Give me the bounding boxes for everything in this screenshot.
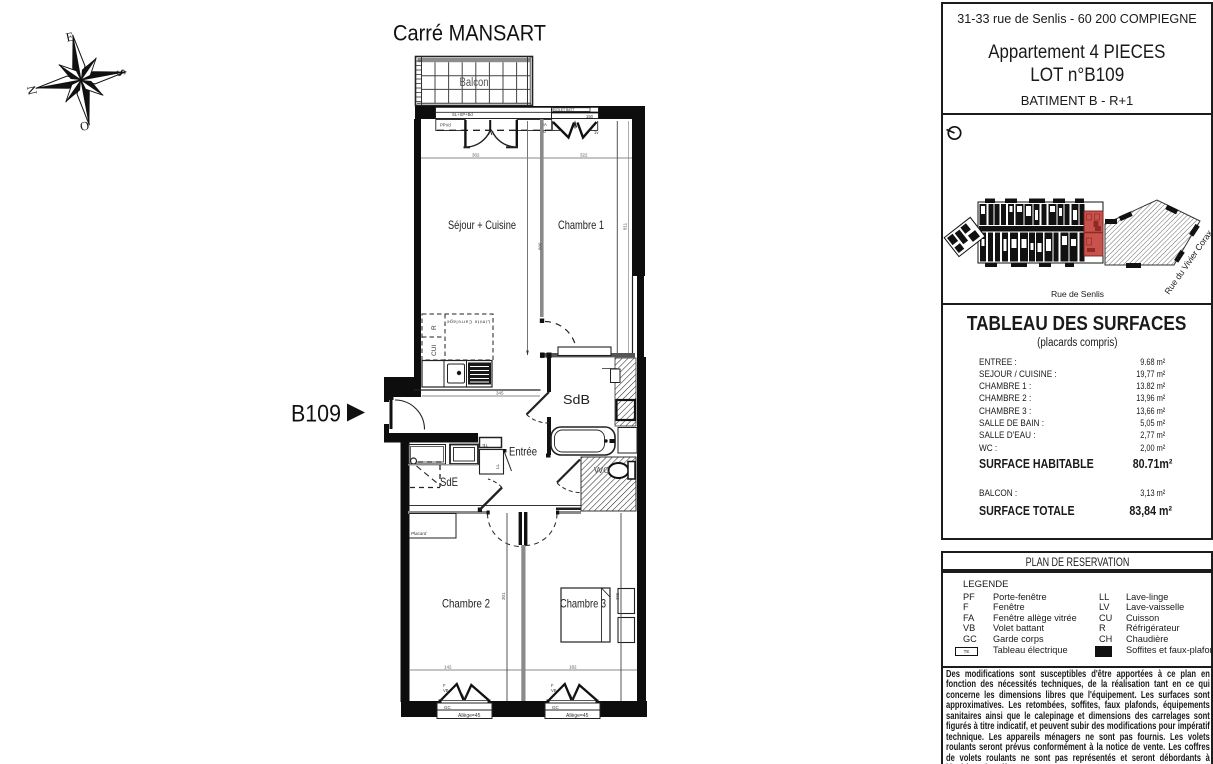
svg-text:WC: WC: [594, 466, 610, 475]
svg-text:GC: GC: [552, 705, 560, 710]
svg-text:TE: TE: [482, 443, 488, 448]
svg-text:Carré MANSART: Carré MANSART: [393, 21, 546, 46]
svg-text:SL+SP+Bd: SL+SP+Bd: [452, 112, 473, 117]
svg-text:VOLET BATT: VOLET BATT: [554, 108, 574, 112]
svg-text:GC: GC: [444, 705, 452, 710]
svg-text:B109: B109: [291, 401, 341, 428]
svg-text:182: 182: [569, 665, 577, 670]
svg-text:Allège=45: Allège=45: [566, 713, 589, 719]
svg-text:305: 305: [615, 592, 620, 600]
svg-text:Rue de Senlis: Rue de Senlis: [1051, 289, 1105, 299]
svg-text:345: 345: [496, 391, 504, 396]
svg-text:142: 142: [444, 665, 452, 670]
svg-text:301: 301: [501, 592, 506, 600]
svg-text:322: 322: [580, 153, 588, 158]
svg-text:Chambre 2: Chambre 2: [442, 598, 490, 611]
svg-text:Balcon: Balcon: [460, 77, 489, 89]
svg-text:150: 150: [586, 114, 594, 119]
svg-text:CUI: CUI: [431, 345, 438, 356]
svg-text:811: 811: [623, 222, 628, 230]
svg-text:VB: VB: [551, 688, 557, 693]
svg-text:R: R: [431, 325, 438, 330]
svg-text:Allège=45: Allège=45: [458, 713, 481, 719]
svg-text:PPVd: PPVd: [440, 123, 451, 128]
svg-text:806: 806: [538, 242, 543, 250]
svg-text:Entrée: Entrée: [509, 445, 537, 459]
svg-text:VB: VB: [443, 688, 449, 693]
svg-text:LL: LL: [495, 463, 500, 469]
svg-text:Placard: Placard: [411, 531, 427, 536]
svg-text:Séjour + Cuisine: Séjour + Cuisine: [448, 219, 516, 232]
svg-text:Limite Carrelage: Limite Carrelage: [447, 320, 490, 325]
svg-text:SdB: SdB: [563, 393, 590, 407]
svg-text:1v: 1v: [594, 130, 599, 135]
svg-text:N: N: [24, 84, 40, 96]
svg-text:302: 302: [472, 153, 480, 158]
svg-text:Chambre 1: Chambre 1: [558, 219, 604, 232]
svg-text:Chambre 3: Chambre 3: [560, 598, 606, 611]
svg-text:S: S: [113, 68, 128, 78]
svg-text:SdE: SdE: [440, 475, 458, 489]
